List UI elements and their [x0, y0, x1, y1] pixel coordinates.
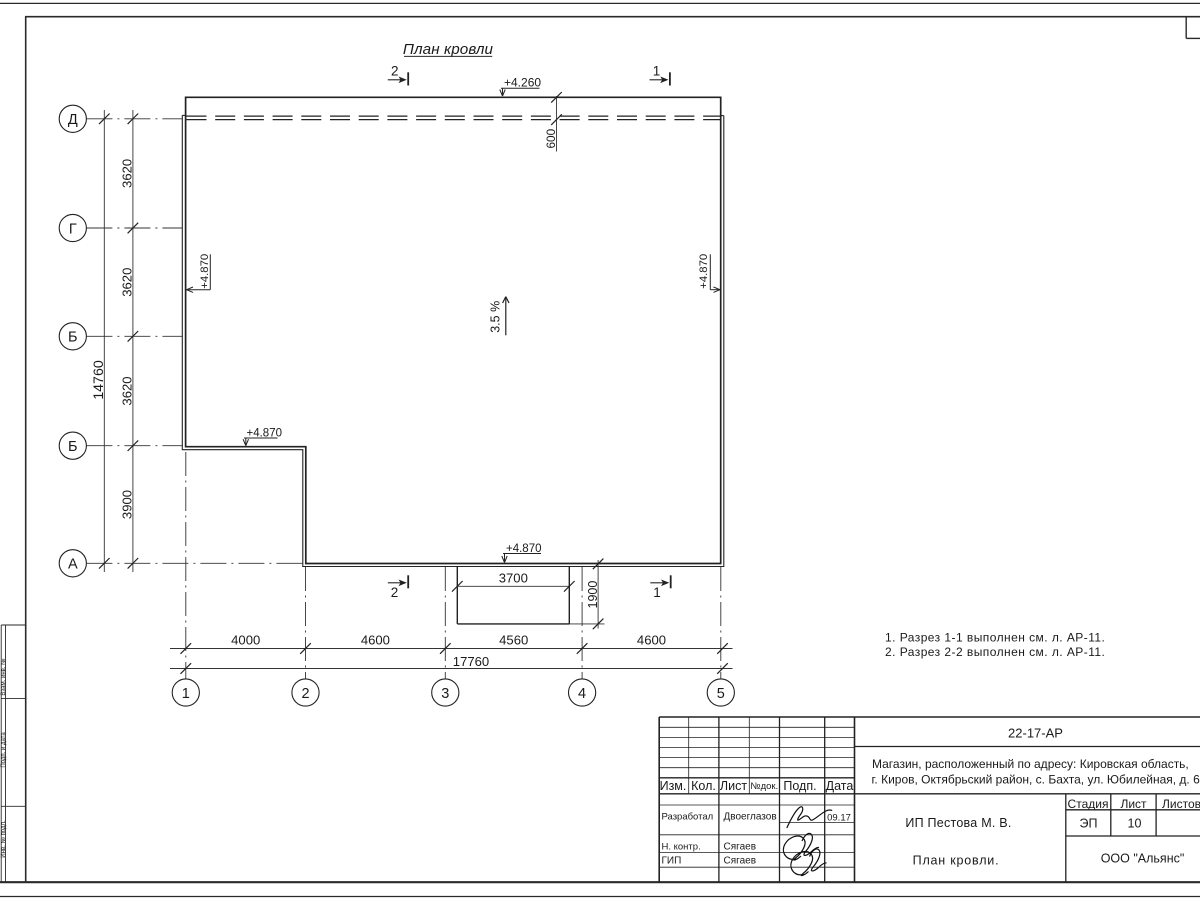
svg-text:Подп.: Подп. [783, 779, 816, 793]
svg-text:09.17: 09.17 [827, 813, 851, 824]
svg-text:Дата: Дата [826, 779, 854, 793]
svg-text:22-17-АР: 22-17-АР [1008, 726, 1063, 741]
svg-text:№док.: №док. [750, 781, 778, 792]
svg-text:4560: 4560 [499, 633, 528, 648]
svg-text:ГИП: ГИП [662, 856, 682, 867]
svg-text:14760: 14760 [91, 360, 107, 400]
svg-text:3.5 %: 3.5 % [488, 301, 502, 333]
svg-text:+4.260: +4.260 [504, 76, 541, 90]
svg-text:17760: 17760 [453, 654, 489, 669]
svg-text:Н. контр.: Н. контр. [662, 842, 701, 853]
svg-text:3620: 3620 [120, 268, 135, 297]
svg-text:Кол.: Кол. [691, 779, 716, 793]
svg-text:А: А [68, 557, 78, 573]
svg-text:Сягаев: Сягаев [724, 856, 757, 867]
svg-text:1: 1 [182, 686, 190, 702]
svg-text:3700: 3700 [499, 570, 528, 585]
svg-text:План кровли.: План кровли. [913, 854, 1000, 868]
svg-text:Б: Б [68, 330, 78, 346]
svg-text:Разработал: Разработал [662, 812, 714, 823]
svg-text:Г: Г [69, 221, 77, 237]
svg-text:2: 2 [391, 585, 399, 600]
svg-text:1: 1 [653, 585, 661, 600]
svg-text:4: 4 [578, 686, 586, 702]
svg-text:3620: 3620 [120, 159, 135, 188]
svg-text:10: 10 [1128, 817, 1142, 831]
svg-text:Лист: Лист [1120, 797, 1147, 811]
svg-text:3: 3 [441, 686, 449, 702]
svg-text:4600: 4600 [361, 633, 390, 648]
svg-text:План кровли: План кровли [403, 41, 494, 58]
svg-text:Инв. № подл.: Инв. № подл. [0, 820, 7, 858]
svg-text:1: 1 [653, 64, 661, 79]
svg-text:Магазин, расположенный по адре: Магазин, расположенный по адресу: Кировс… [872, 757, 1189, 771]
svg-text:Двоеглазов: Двоеглазов [724, 812, 777, 823]
svg-text:Б: Б [68, 439, 78, 455]
svg-text:2: 2 [301, 686, 309, 702]
svg-text:Стадия: Стадия [1068, 797, 1109, 811]
svg-text:3620: 3620 [120, 376, 135, 405]
svg-text:1900: 1900 [586, 581, 600, 609]
svg-text:+4.870: +4.870 [698, 254, 710, 289]
svg-text:600: 600 [544, 128, 558, 148]
svg-text:2. Разрез 2-2 выполнен см. л.: 2. Разрез 2-2 выполнен см. л. АР-11. [885, 645, 1105, 659]
svg-text:4000: 4000 [231, 633, 260, 648]
svg-text:2: 2 [391, 64, 399, 79]
svg-text:+4.870: +4.870 [199, 254, 211, 289]
svg-text:3900: 3900 [120, 490, 135, 519]
svg-text:ЭП: ЭП [1080, 817, 1098, 831]
svg-text:ИП Пестова М. В.: ИП Пестова М. В. [905, 816, 1011, 830]
svg-text:Подп. и дата: Подп. и дата [1, 732, 7, 768]
svg-text:Взам. инв. №: Взам. инв. № [0, 658, 7, 695]
svg-text:ООО "Альянс": ООО "Альянс" [1101, 852, 1185, 866]
svg-text:4600: 4600 [637, 633, 666, 648]
svg-text:Д: Д [68, 112, 78, 128]
svg-text:Изм.: Изм. [660, 779, 687, 793]
svg-text:г. Киров, Октябрьский район, с: г. Киров, Октябрьский район, с. Бахта, у… [872, 773, 1200, 787]
svg-text:Лист: Лист [720, 779, 747, 793]
svg-text:1. Разрез 1-1 выполнен см. л.: 1. Разрез 1-1 выполнен см. л. АР-11. [885, 631, 1105, 645]
svg-text:Сягаев: Сягаев [724, 842, 757, 853]
svg-text:5: 5 [717, 686, 725, 702]
svg-text:Листов: Листов [1162, 797, 1200, 811]
